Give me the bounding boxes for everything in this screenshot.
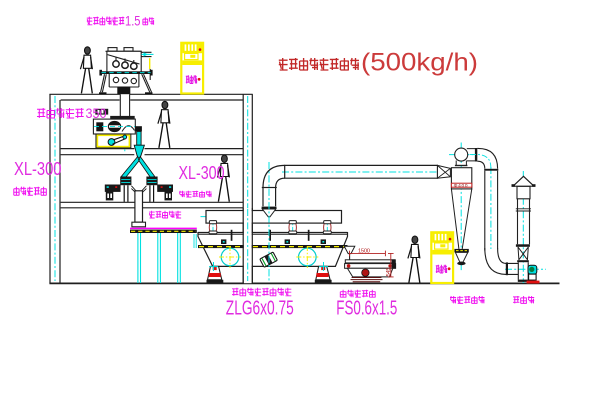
svg-text:(500kg/h): (500kg/h) — [361, 49, 478, 77]
svg-text:FS0.6x1.5: FS0.6x1.5 — [336, 298, 397, 320]
svg-text:Φ400: Φ400 — [454, 183, 468, 189]
svg-text:1.5: 1.5 — [125, 12, 141, 28]
svg-text:545: 545 — [386, 268, 392, 277]
svg-text:XL-300: XL-300 — [14, 159, 62, 179]
svg-text:350: 350 — [86, 106, 107, 121]
svg-text:1500: 1500 — [358, 249, 370, 255]
svg-text:XL-300: XL-300 — [179, 163, 225, 183]
svg-text:ZLG6x0.75: ZLG6x0.75 — [226, 298, 294, 320]
